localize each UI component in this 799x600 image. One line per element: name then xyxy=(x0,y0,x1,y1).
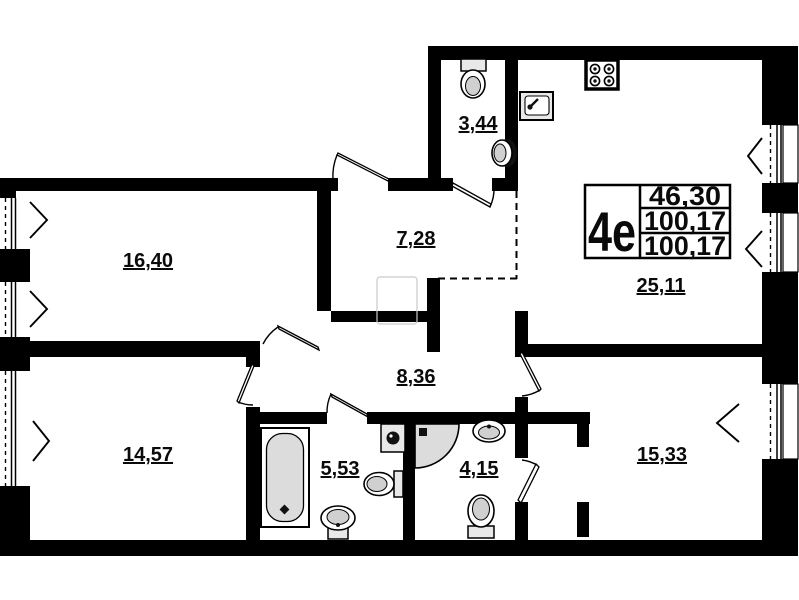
shower-room: 4,15 xyxy=(460,458,499,480)
room-area-label: 25,11 xyxy=(637,275,686,297)
wall-segment xyxy=(441,178,453,191)
room-area-label: 16,40 xyxy=(123,250,173,272)
room-area-label: 8,36 xyxy=(397,366,436,388)
corner-shower-icon xyxy=(415,424,459,468)
wall-segment xyxy=(515,397,528,458)
bathroom: 5,53 xyxy=(321,458,360,480)
wall-pillar xyxy=(427,278,440,352)
window-opening-chevron xyxy=(30,291,47,327)
window xyxy=(771,125,799,183)
toilet-icon xyxy=(461,59,486,98)
washbasin-icon xyxy=(473,420,505,442)
window xyxy=(771,213,799,272)
wall-segment xyxy=(762,459,798,556)
floor-plan-page: 16,40 14,57 7,28 8,36 3,44 25,11 5,53 4,… xyxy=(0,0,799,600)
hall-lower: 8,36 xyxy=(397,366,436,388)
window-sill xyxy=(783,213,798,272)
open-plan-boundary xyxy=(438,191,517,279)
toilet-icon xyxy=(468,495,494,538)
room-area-label: 3,44 xyxy=(459,113,499,135)
wall-segment xyxy=(505,46,518,191)
room-right: 15,33 xyxy=(637,444,687,466)
wall-segment xyxy=(515,344,762,357)
wall-pillar xyxy=(0,249,30,282)
room-area-label: 5,53 xyxy=(321,458,360,480)
washbasin-icon xyxy=(492,139,517,167)
wall-segment xyxy=(577,424,589,447)
unit-area-value: 100,17 xyxy=(644,231,726,261)
wall-segment xyxy=(762,46,798,125)
wall-segment xyxy=(317,191,331,311)
room-top-left-door xyxy=(263,326,319,350)
wall-segment xyxy=(515,502,528,556)
wall-segment xyxy=(246,412,327,424)
wall-segment xyxy=(246,407,260,556)
window-opening-chevron xyxy=(33,421,49,461)
window xyxy=(6,198,16,249)
unit-type-label: 4e xyxy=(588,200,636,263)
wc-top-door xyxy=(452,183,494,207)
window-sill xyxy=(783,125,798,183)
entrance-door xyxy=(333,153,389,181)
wall-segment xyxy=(428,46,441,191)
window xyxy=(771,384,799,459)
washbasin-icon xyxy=(321,506,355,539)
wall-segment xyxy=(0,178,338,191)
wall-segment xyxy=(428,46,778,60)
wall-segment xyxy=(331,311,440,322)
wall-segment xyxy=(16,341,260,357)
room-bottom-left-door xyxy=(237,364,254,405)
wc-top: 3,44 xyxy=(459,113,499,135)
washing-machine-icon xyxy=(381,424,405,452)
wall-pillar xyxy=(762,183,798,213)
window xyxy=(6,282,16,337)
room-area-label: 15,33 xyxy=(637,444,687,466)
floor-plan: 16,40 14,57 7,28 8,36 3,44 25,11 5,53 4,… xyxy=(0,0,799,600)
bathroom-door xyxy=(327,394,368,417)
wall-segment xyxy=(388,178,433,191)
window-opening-chevron xyxy=(717,404,739,442)
kitchen-living: 25,11 xyxy=(637,275,686,297)
room-top-left: 16,40 xyxy=(123,250,173,272)
window-sill xyxy=(783,384,798,459)
wall-segment xyxy=(0,540,778,556)
stove-icon xyxy=(586,60,618,89)
window xyxy=(6,371,16,486)
wall-segment xyxy=(0,178,16,198)
wall-segment xyxy=(762,272,798,384)
room-bottom-left: 14,57 xyxy=(123,444,173,466)
room-area-label: 4,15 xyxy=(460,458,499,480)
window-opening-chevron xyxy=(30,202,47,238)
hall-upper: 7,28 xyxy=(397,228,436,250)
room-right-door xyxy=(520,352,541,396)
room-area-label: 7,28 xyxy=(397,228,436,250)
window-opening-chevron xyxy=(746,231,762,267)
toilet-icon xyxy=(364,471,403,497)
bathtub-icon xyxy=(261,428,309,527)
unit-info-table: 4e 46,30 100,17 100,17 xyxy=(585,181,730,263)
wall-segment xyxy=(577,502,589,537)
shower-room-door xyxy=(518,460,539,503)
kitchen-sink-icon xyxy=(520,92,553,120)
wall-segment xyxy=(246,341,260,367)
room-area-label: 14,57 xyxy=(123,444,173,466)
window-opening-chevron xyxy=(748,138,762,174)
